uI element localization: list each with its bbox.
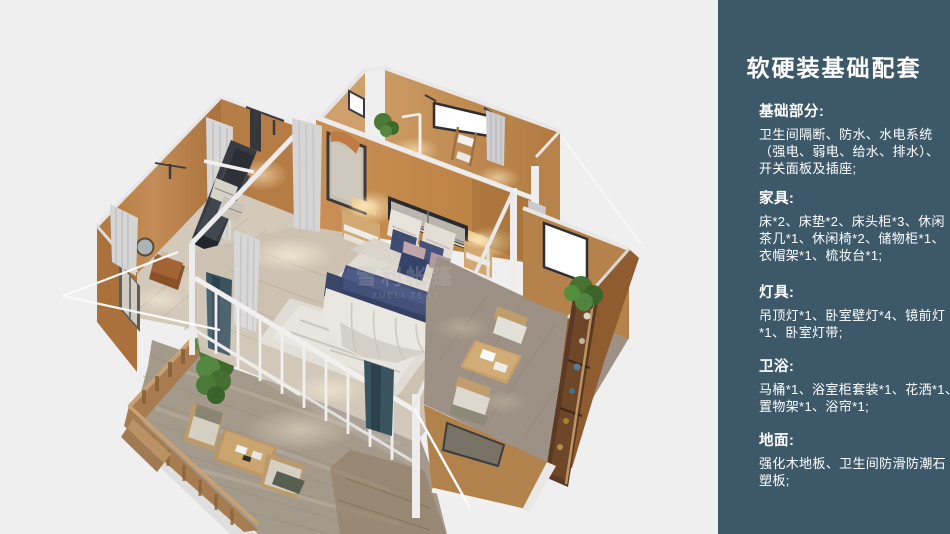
svg-text:雪利帐篷: 雪利帐篷: [356, 265, 456, 289]
svg-text:XUELI TENT: XUELI TENT: [372, 290, 441, 300]
